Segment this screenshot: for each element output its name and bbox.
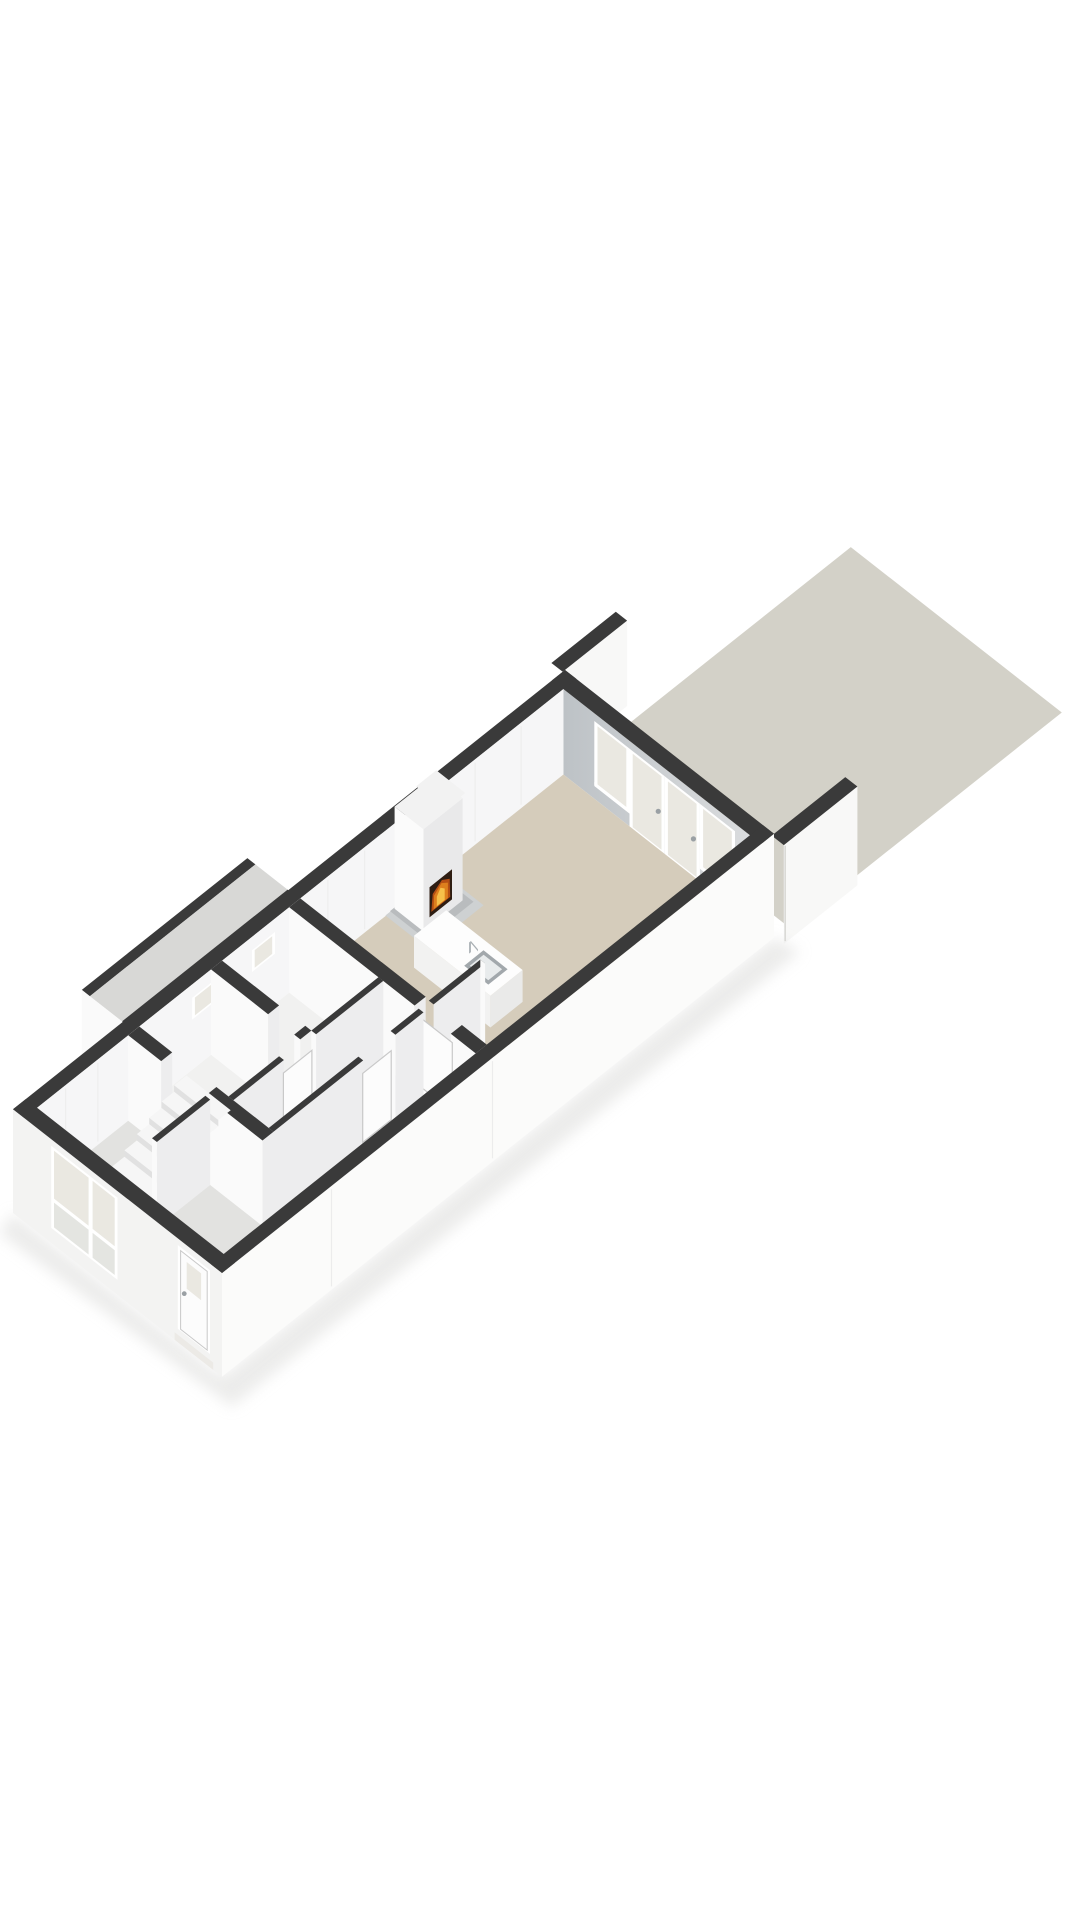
wall-end-se (263, 1132, 274, 1226)
front-door-handle (182, 1291, 187, 1296)
door-handle (691, 836, 696, 841)
floorplan-canvas (0, 0, 1080, 1920)
door-handle (656, 809, 661, 814)
faucet-riser (469, 941, 471, 954)
nook-wall-end (480, 960, 485, 1049)
floorplan-3d-render (0, 0, 1080, 1920)
